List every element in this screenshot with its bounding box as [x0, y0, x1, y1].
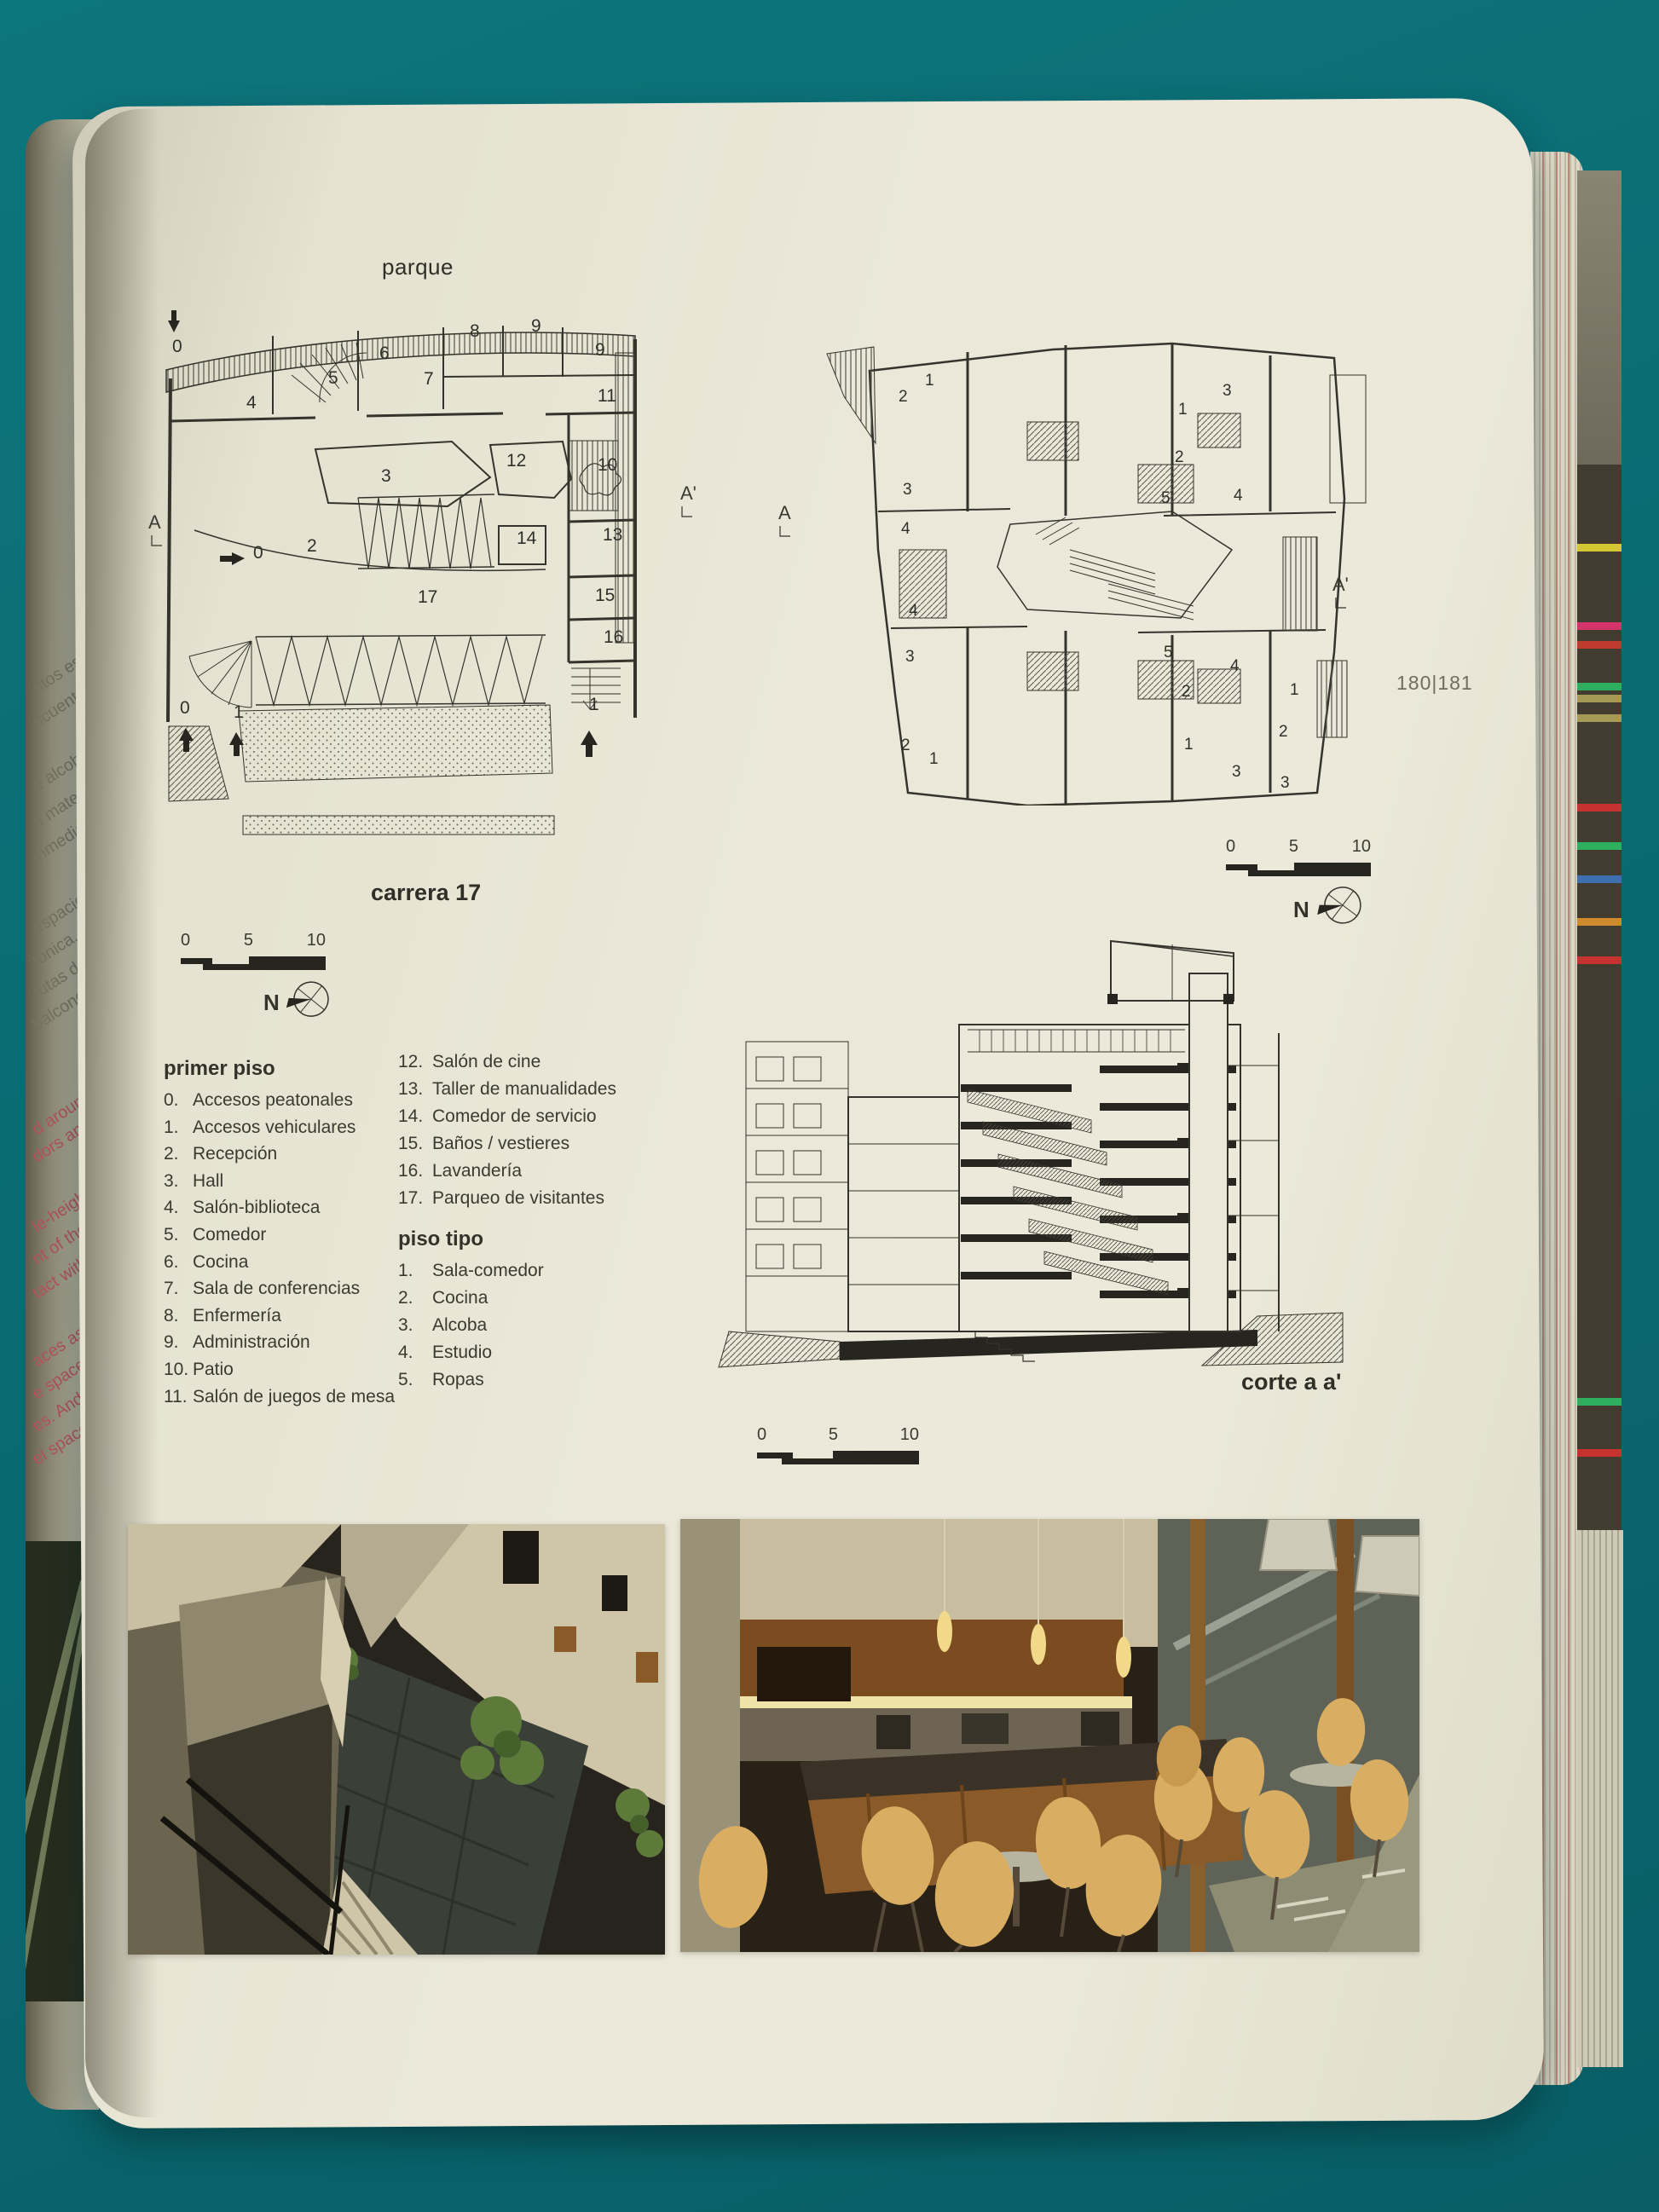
cover-index-tab	[1577, 714, 1621, 722]
room-number: 5	[1164, 644, 1173, 661]
room-number: 1	[1184, 736, 1194, 754]
typical-floor-plan: A A' 123125434432152412133	[772, 294, 1368, 806]
cover-index-tab	[1577, 956, 1621, 964]
room-number: 3	[1232, 763, 1241, 781]
room-number: 7	[424, 369, 434, 389]
cover-index-tab	[1577, 918, 1621, 926]
legend-title-first-floor: primer piso	[164, 1057, 398, 1081]
cover-index-tab	[1577, 695, 1621, 702]
section-marker-a-prime: A'	[680, 482, 697, 504]
room-number: 6	[379, 344, 390, 363]
room-number: 17	[418, 587, 437, 607]
legend-first-floor: primer piso 0.Accesos peatonales 1.Acces…	[164, 1057, 398, 1410]
atrium-courtyard-photo	[128, 1524, 665, 1955]
cover-index-tab	[1577, 683, 1621, 690]
scale-bar-ground-floor: 0510	[181, 931, 326, 972]
room-number: 9	[531, 316, 541, 336]
room-number: 3	[1223, 382, 1232, 400]
legend-item: 15.Baños / vestieres	[398, 1130, 662, 1158]
legend-item: 0.Accesos peatonales	[164, 1087, 398, 1114]
legend-item: 6.Cocina	[164, 1249, 398, 1276]
ground-floor-room-numbers: 045678991131210201413151617011	[172, 316, 623, 722]
legend-item: 5.Ropas	[398, 1366, 662, 1394]
room-number: 10	[598, 455, 617, 475]
room-number: 2	[1279, 723, 1288, 741]
room-number: 3	[905, 648, 915, 666]
legend-title-typical-floor: piso tipo	[398, 1227, 662, 1251]
room-number: 2	[307, 536, 317, 556]
cover-index-tab	[1577, 1449, 1621, 1457]
legend-item: 3.Hall	[164, 1168, 398, 1195]
legend-item: 8.Enfermería	[164, 1302, 398, 1330]
legend-second-column: 12.Salón de cine 13.Taller de manualidad…	[398, 1048, 662, 1394]
room-number: 3	[381, 466, 391, 486]
room-number: 4	[246, 393, 257, 413]
room-number: 1	[1290, 681, 1299, 699]
room-number: 14	[517, 528, 537, 548]
legend-item: 1.Accesos vehiculares	[164, 1114, 398, 1141]
legend-item: 17.Parqueo de visitantes	[398, 1185, 662, 1212]
room-number: 2	[1182, 683, 1191, 701]
room-number: 8	[470, 321, 480, 341]
room-number: 4	[901, 520, 910, 538]
room-number: 1	[589, 695, 599, 714]
room-number: 13	[603, 525, 622, 545]
north-arrow-icon: N	[251, 972, 345, 1028]
room-number: 0	[253, 543, 263, 563]
scale-bar-typical-floor: 0510	[1226, 837, 1371, 878]
legend-item: 4.Salón-biblioteca	[164, 1194, 398, 1222]
cover-index-tab	[1577, 641, 1621, 649]
legend-item: 16.Lavandería	[398, 1158, 662, 1185]
room-number: 4	[1234, 487, 1243, 505]
svg-text:N: N	[1293, 897, 1309, 922]
room-number: 3	[903, 481, 912, 499]
room-number: 5	[1161, 489, 1171, 507]
room-number: 5	[328, 368, 338, 388]
legend-item: 1.Sala-comedor	[398, 1257, 662, 1285]
room-number: 2	[1175, 448, 1184, 466]
building-section-drawing	[712, 922, 1347, 1408]
room-number: 3	[1280, 774, 1290, 792]
room-number: 1	[925, 372, 934, 390]
north-arrow-icon: N	[1283, 876, 1377, 936]
room-number: 1	[1178, 401, 1188, 419]
legend-item: 10.Patio	[164, 1356, 398, 1383]
book-photo: ntos estánncuentrose alcoba-a materasinm…	[0, 0, 1659, 2212]
ground-floor-plan: A A' 045678991131210201413151617011	[145, 274, 708, 880]
room-number: 15	[595, 586, 615, 605]
room-number: 12	[506, 451, 526, 471]
room-number: 0	[180, 698, 190, 718]
cover-edge-tabs	[1577, 465, 1621, 1530]
room-number: 9	[595, 340, 605, 360]
legend-item: 13.Taller de manualidades	[398, 1076, 662, 1103]
room-number: 2	[901, 736, 910, 754]
room-number: 0	[172, 337, 182, 356]
room-number: 11	[598, 386, 616, 406]
plan-bottom-street-label: carrera 17	[371, 880, 481, 906]
room-number: 16	[604, 627, 623, 647]
page-number: 180|181	[1396, 672, 1473, 695]
legend-item: 5.Comedor	[164, 1222, 398, 1249]
legend-item: 11.Salón de juegos de mesa	[164, 1383, 398, 1411]
legend-item: 4.Estudio	[398, 1339, 662, 1366]
legend-item: 14.Comedor de servicio	[398, 1103, 662, 1130]
section-marker-a: A	[778, 502, 791, 523]
room-number: 4	[909, 602, 918, 620]
cover-index-tab	[1577, 875, 1621, 883]
cover-index-tab	[1577, 544, 1621, 552]
room-number: 1	[929, 750, 939, 768]
cover-edge-bottom	[1577, 1530, 1623, 2067]
room-number: 2	[899, 388, 908, 406]
cafeteria-photo	[680, 1519, 1419, 1952]
legend-item: 2.Recepción	[164, 1141, 398, 1168]
cover-index-tab	[1577, 804, 1621, 811]
room-number: 1	[234, 702, 244, 722]
cover-index-tab	[1577, 842, 1621, 850]
section-marker-a: A	[148, 511, 161, 533]
cover-index-tab	[1577, 1398, 1621, 1406]
room-number: 4	[1230, 657, 1240, 675]
svg-text:N: N	[263, 990, 280, 1015]
cover-index-tab	[1577, 622, 1621, 630]
legend-item: 7.Sala de conferencias	[164, 1275, 398, 1302]
section-marker-a-prime: A'	[1332, 574, 1349, 595]
legend-item: 2.Cocina	[398, 1285, 662, 1312]
legend-item: 3.Alcoba	[398, 1312, 662, 1339]
legend-item: 12.Salón de cine	[398, 1048, 662, 1076]
legend-item: 9.Administración	[164, 1329, 398, 1356]
cover-edge-top	[1577, 170, 1621, 465]
scale-bar-section: 0510	[757, 1425, 919, 1466]
